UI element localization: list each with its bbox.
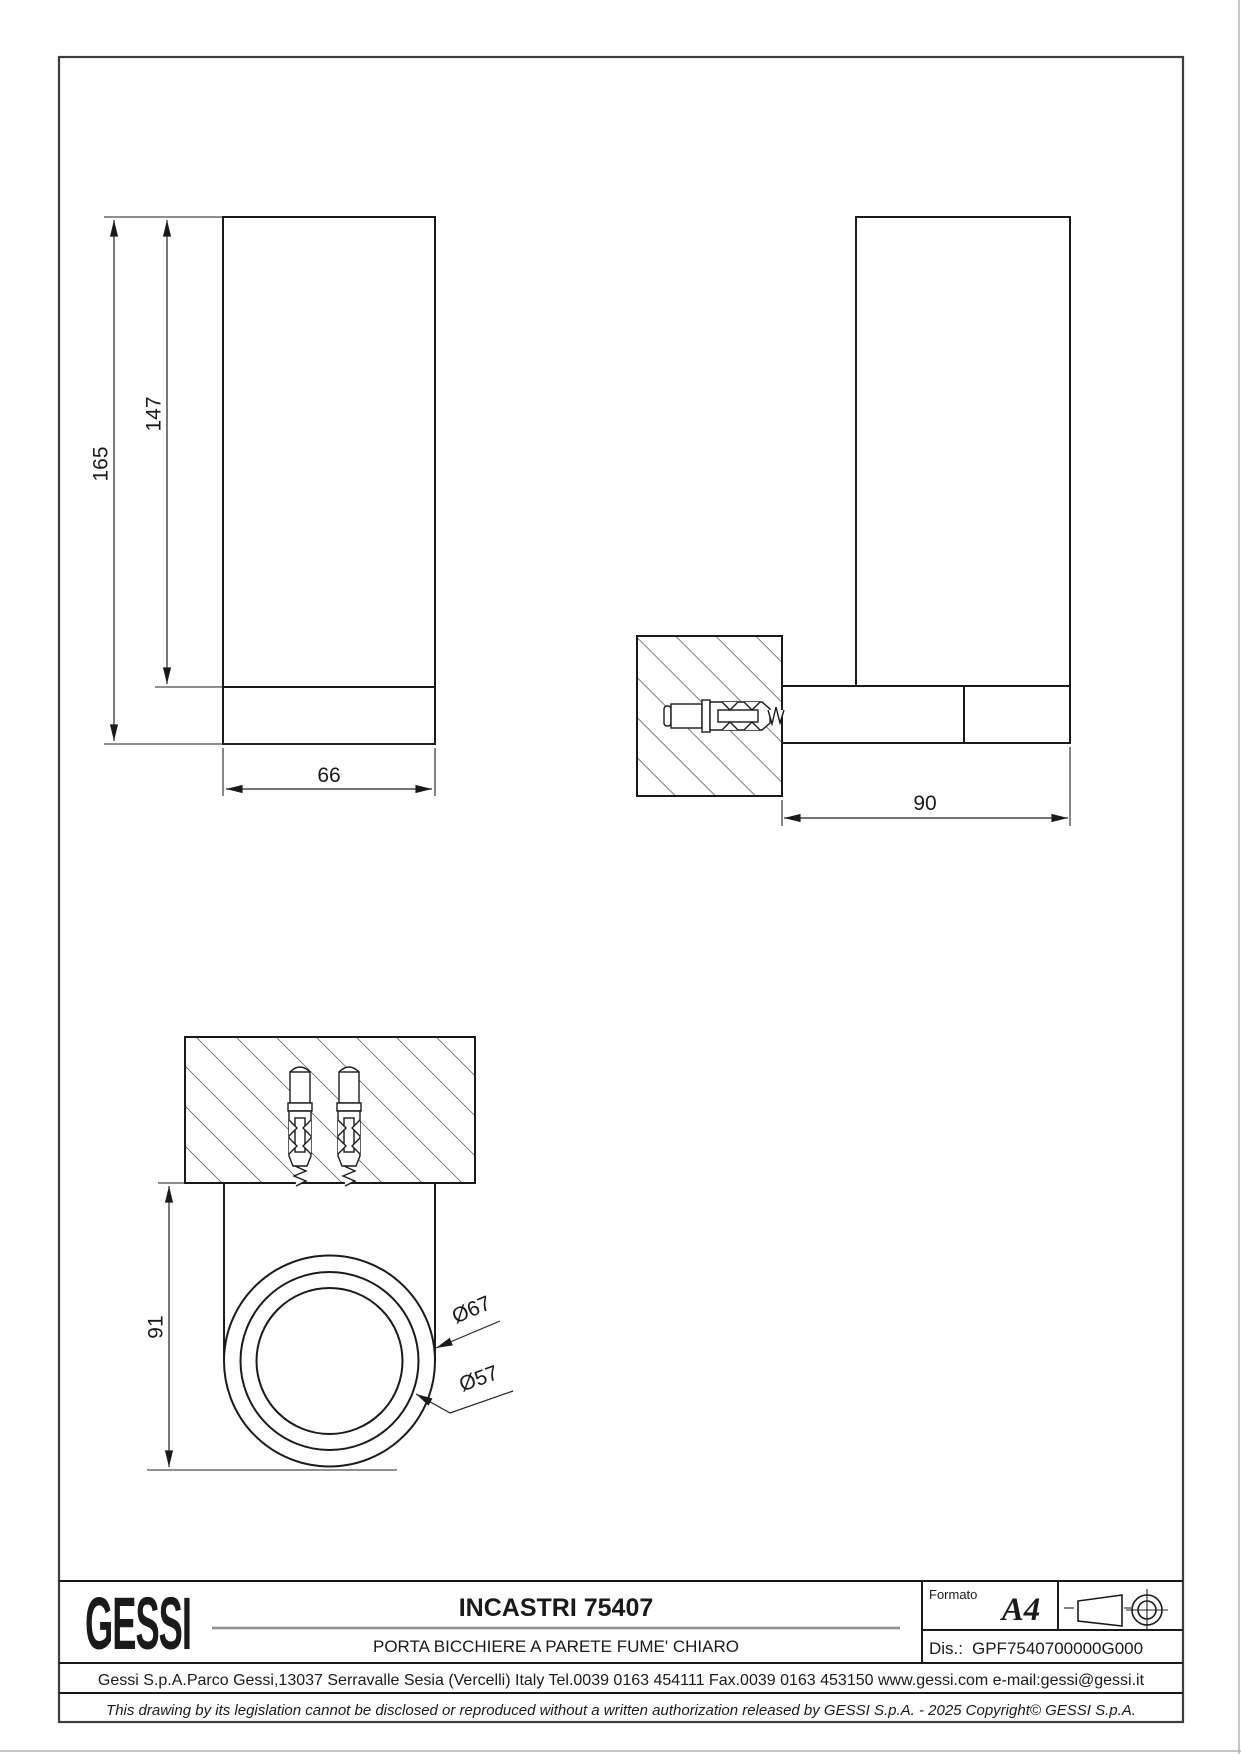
company-address: Gessi S.p.A.Parco Gessi,13037 Serravalle… (98, 1672, 1145, 1689)
dis-value: GPF7540700000G000 (972, 1639, 1143, 1658)
dim-label-d57: Ø57 (456, 1361, 501, 1396)
projection-symbol-cone (1064, 1595, 1131, 1626)
dim-label-66: 66 (317, 764, 340, 787)
front-holder-band (223, 687, 435, 744)
leader-d67 (436, 1321, 500, 1348)
formato-label: Formato (929, 1587, 977, 1602)
dim-label-90: 90 (913, 792, 936, 815)
top-view: 91 Ø67 Ø57 (144, 1037, 513, 1470)
side-holder-arm (782, 686, 1070, 743)
front-view: 165 147 66 (89, 217, 435, 796)
dis-label: Dis.: (929, 1639, 963, 1658)
side-view: 90 (637, 217, 1070, 826)
title-block: GESSI INCASTRI 75407 PORTA BICCHIERE A P… (59, 1581, 1183, 1719)
wall-section-top (185, 1037, 475, 1183)
drawing-subtitle: PORTA BICCHIERE A PARETE FUME' CHIARO (373, 1637, 739, 1656)
dim-label-165: 165 (89, 446, 112, 481)
projection-symbol-circle (1126, 1589, 1168, 1631)
wall-anchor-side (664, 700, 784, 732)
drawing-title: INCASTRI 75407 (459, 1594, 654, 1622)
technical-drawing: 165 147 66 90 (0, 0, 1241, 1754)
dim-label-91: 91 (144, 1315, 167, 1338)
formato-value: A4 (1000, 1592, 1041, 1628)
dim-label-147: 147 (142, 396, 165, 431)
gessi-logo: GESSI (85, 1582, 191, 1665)
glass-outer-circle (241, 1272, 419, 1450)
glass-inner-circle (257, 1288, 403, 1434)
side-glass-outline (856, 217, 1070, 686)
front-glass-outline (223, 217, 435, 687)
legal-notice: This drawing by its legislation cannot b… (106, 1702, 1136, 1719)
drawing-sheet: 165 147 66 90 (0, 0, 1241, 1754)
dim-label-d67: Ø67 (449, 1292, 495, 1329)
